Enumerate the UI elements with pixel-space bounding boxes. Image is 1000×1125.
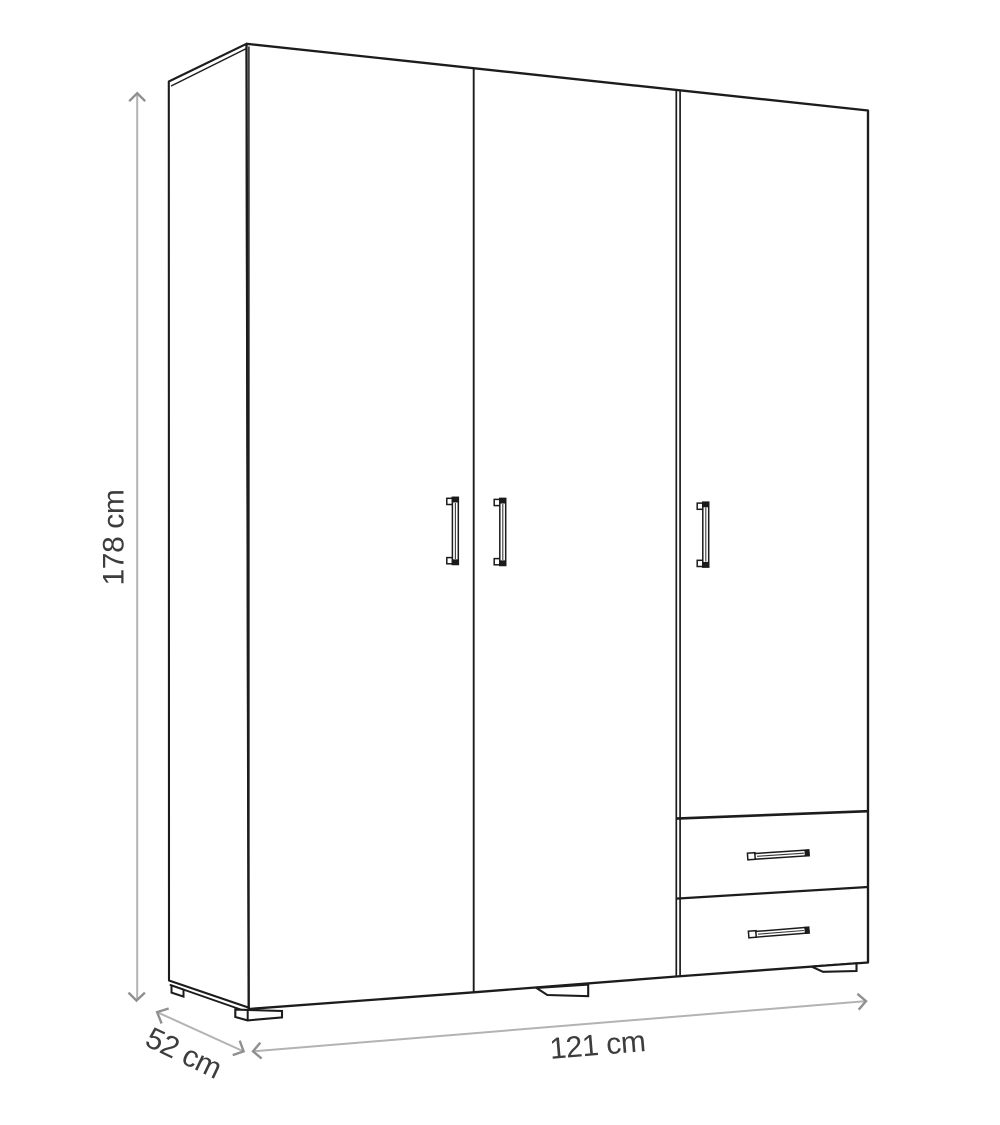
svg-text:52 cm: 52 cm <box>140 1021 226 1085</box>
svg-text:178 cm: 178 cm <box>97 490 130 586</box>
svg-text:121 cm: 121 cm <box>548 1025 646 1066</box>
